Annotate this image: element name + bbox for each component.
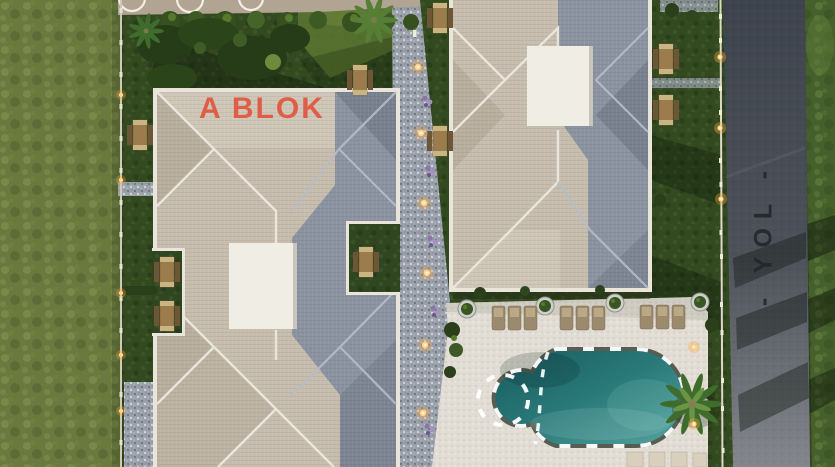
wild-grass-field [0,0,121,467]
site-plan-render: A BLOK - YOL - [0,0,835,467]
aerial-render-canvas [0,0,835,467]
road-label: - YOL - [750,162,779,306]
building-a [152,88,400,467]
building-b [449,0,652,299]
path-post [413,30,417,37]
sun-loungers-top [492,305,685,330]
hedge-row-left [123,286,157,295]
rooftop-terrace-b [527,46,593,126]
block-a-label: A BLOK [199,92,325,126]
rooftop-terrace-a [229,243,297,329]
